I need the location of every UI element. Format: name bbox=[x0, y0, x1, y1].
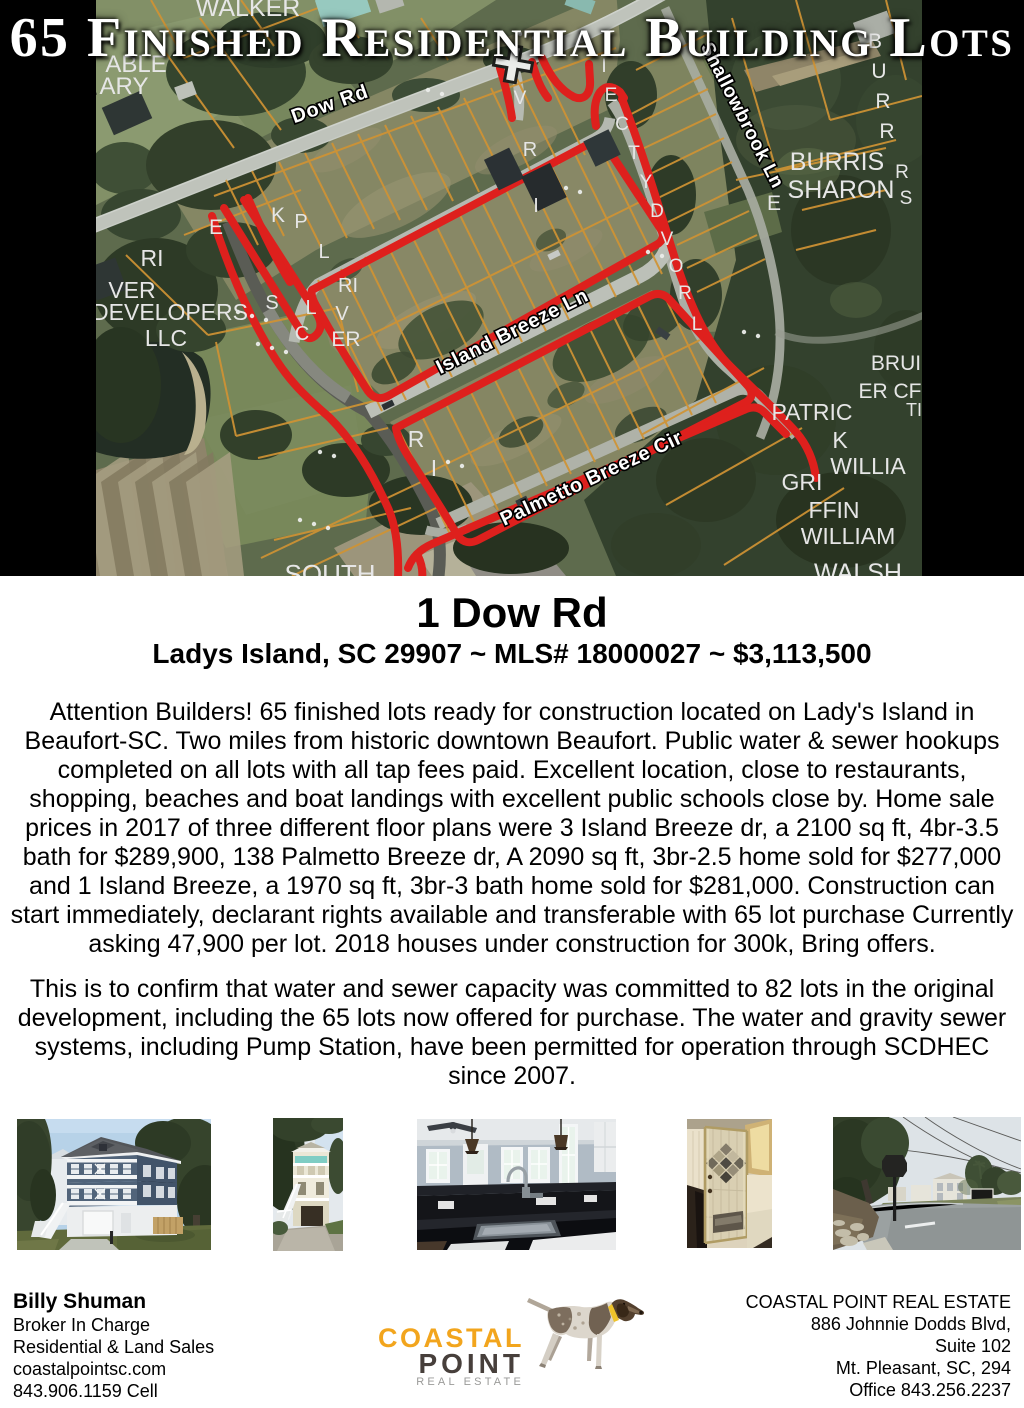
svg-text:R: R bbox=[895, 162, 909, 183]
svg-text:RI: RI bbox=[141, 245, 164, 271]
svg-text:SHARON: SHARON bbox=[788, 176, 895, 204]
svg-text:PATRIC: PATRIC bbox=[772, 399, 853, 425]
svg-text:R: R bbox=[523, 139, 537, 161]
svg-text:R: R bbox=[875, 90, 890, 113]
svg-text:S: S bbox=[900, 188, 913, 209]
svg-text:WILLIAM: WILLIAM bbox=[801, 523, 896, 549]
svg-text:ER: ER bbox=[331, 328, 360, 351]
svg-text:RI: RI bbox=[338, 275, 358, 297]
svg-text:WILLIA: WILLIA bbox=[830, 453, 906, 479]
svg-text:E: E bbox=[605, 85, 618, 106]
svg-text:WALSH: WALSH bbox=[814, 559, 902, 576]
svg-text:I: I bbox=[533, 195, 539, 217]
svg-text:P: P bbox=[294, 211, 307, 233]
svg-text:C: C bbox=[295, 323, 309, 345]
svg-text:D: D bbox=[650, 201, 664, 222]
svg-text:BURRIS: BURRIS bbox=[790, 148, 884, 176]
svg-text:S: S bbox=[265, 292, 278, 314]
svg-text:C: C bbox=[615, 114, 629, 135]
svg-text:FFIN: FFIN bbox=[808, 497, 859, 523]
svg-text:T: T bbox=[628, 143, 640, 164]
svg-text:I: I bbox=[431, 455, 437, 481]
svg-text:L: L bbox=[305, 297, 316, 319]
svg-text:O: O bbox=[669, 256, 684, 277]
svg-text:R: R bbox=[408, 426, 425, 452]
svg-text:V: V bbox=[661, 229, 674, 250]
svg-text:R: R bbox=[879, 120, 894, 143]
svg-text:BRUI: BRUI bbox=[871, 352, 921, 375]
svg-text:K: K bbox=[832, 427, 848, 453]
svg-text:L: L bbox=[692, 314, 703, 335]
svg-text:E: E bbox=[209, 216, 223, 239]
svg-text:R: R bbox=[678, 283, 692, 304]
svg-text:LLC: LLC bbox=[145, 325, 187, 351]
svg-text:E: E bbox=[767, 192, 781, 215]
svg-text:Y: Y bbox=[640, 172, 653, 193]
svg-text:DEVELOPERS: DEVELOPERS bbox=[96, 299, 248, 325]
svg-text:L: L bbox=[318, 241, 329, 263]
svg-text:V: V bbox=[335, 303, 349, 325]
svg-text:TI: TI bbox=[906, 400, 922, 420]
svg-text:GRI: GRI bbox=[782, 469, 823, 495]
svg-text:K: K bbox=[271, 204, 285, 227]
svg-text:ARY: ARY bbox=[100, 73, 149, 100]
svg-text:SOUTH: SOUTH bbox=[285, 559, 376, 576]
svg-text:V: V bbox=[514, 88, 527, 109]
